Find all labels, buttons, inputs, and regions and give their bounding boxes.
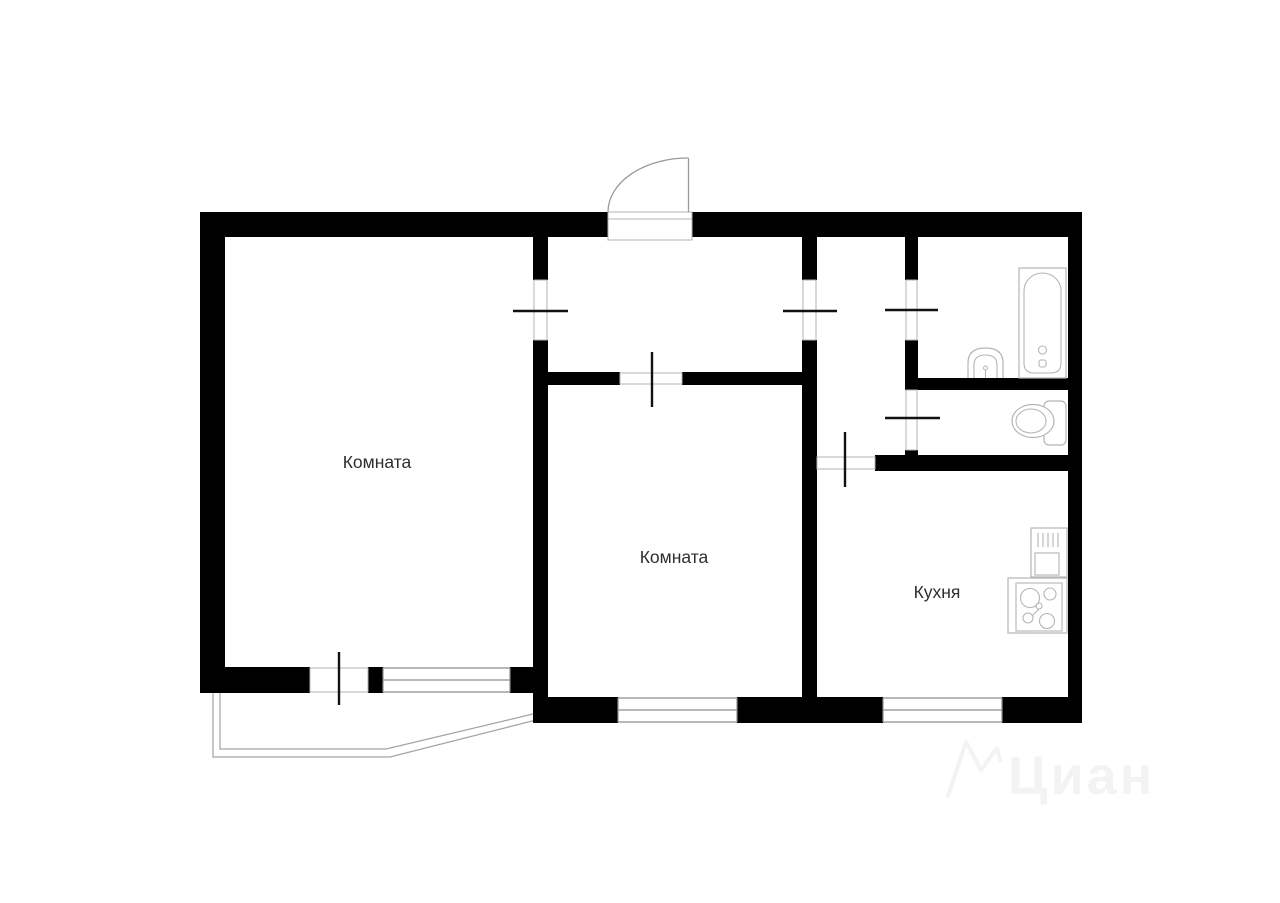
entrance-door-swing-icon	[608, 158, 689, 212]
middle-room-window	[618, 698, 737, 722]
bathroom-sink-icon	[968, 348, 1003, 378]
kitchen-door	[817, 432, 875, 487]
floor-plan-svg: Циан	[0, 0, 1280, 903]
stove-outer	[1008, 578, 1067, 633]
left-room-door	[513, 280, 568, 340]
wall-top-left-segment	[200, 212, 608, 237]
balcony-door	[310, 652, 368, 705]
stove-icon	[1008, 578, 1067, 633]
cian-bird-icon	[948, 742, 1000, 796]
wall-bottom-left-2	[368, 667, 383, 693]
wall-hallway-left	[548, 372, 620, 385]
wall-bottom-right	[1002, 697, 1082, 723]
wall-middleroom-lower	[802, 340, 817, 723]
middle-room-door	[620, 352, 682, 407]
wall-bathroom-bottom	[918, 378, 1068, 390]
kitchen-window	[883, 698, 1002, 722]
wall-leftroom-lower	[533, 340, 548, 723]
wall-right	[1068, 212, 1082, 723]
room-middle-label: Комната	[640, 547, 709, 567]
windows	[383, 668, 1002, 722]
wc-door	[885, 390, 940, 450]
wall-bathroom-lower	[905, 340, 918, 390]
wall-hallway-right	[682, 372, 802, 385]
floor-plan: Циан	[0, 0, 1280, 903]
wall-kitchen-top	[875, 455, 1068, 471]
wall-bottom-left-1	[200, 667, 310, 693]
kitchen-label: Кухня	[914, 582, 961, 602]
bathtub-icon	[1019, 268, 1066, 378]
kitchen-sink-counter-icon	[1031, 528, 1067, 577]
left-room-window	[383, 668, 510, 692]
bathtub-outer	[1019, 268, 1066, 378]
corridor-door	[783, 280, 837, 340]
doors	[310, 158, 940, 705]
wall-left	[200, 212, 225, 693]
balcony-inner-line	[220, 693, 533, 749]
entrance-door	[608, 158, 692, 240]
entrance-door-sill	[608, 212, 692, 240]
wall-leftroom-upper	[533, 237, 548, 280]
toilet-icon	[1012, 401, 1066, 445]
wc-door-sill	[906, 390, 917, 450]
watermark-text: Циан	[1008, 746, 1155, 806]
balcony-outline	[213, 693, 536, 757]
room-left-label: Комната	[343, 452, 412, 472]
wall-middleroom-upper	[802, 237, 817, 280]
wall-bathroom-upper	[905, 237, 918, 280]
bathroom-door	[885, 280, 938, 340]
wall-top-right-segment	[692, 212, 1082, 237]
watermark: Циан	[948, 742, 1155, 806]
